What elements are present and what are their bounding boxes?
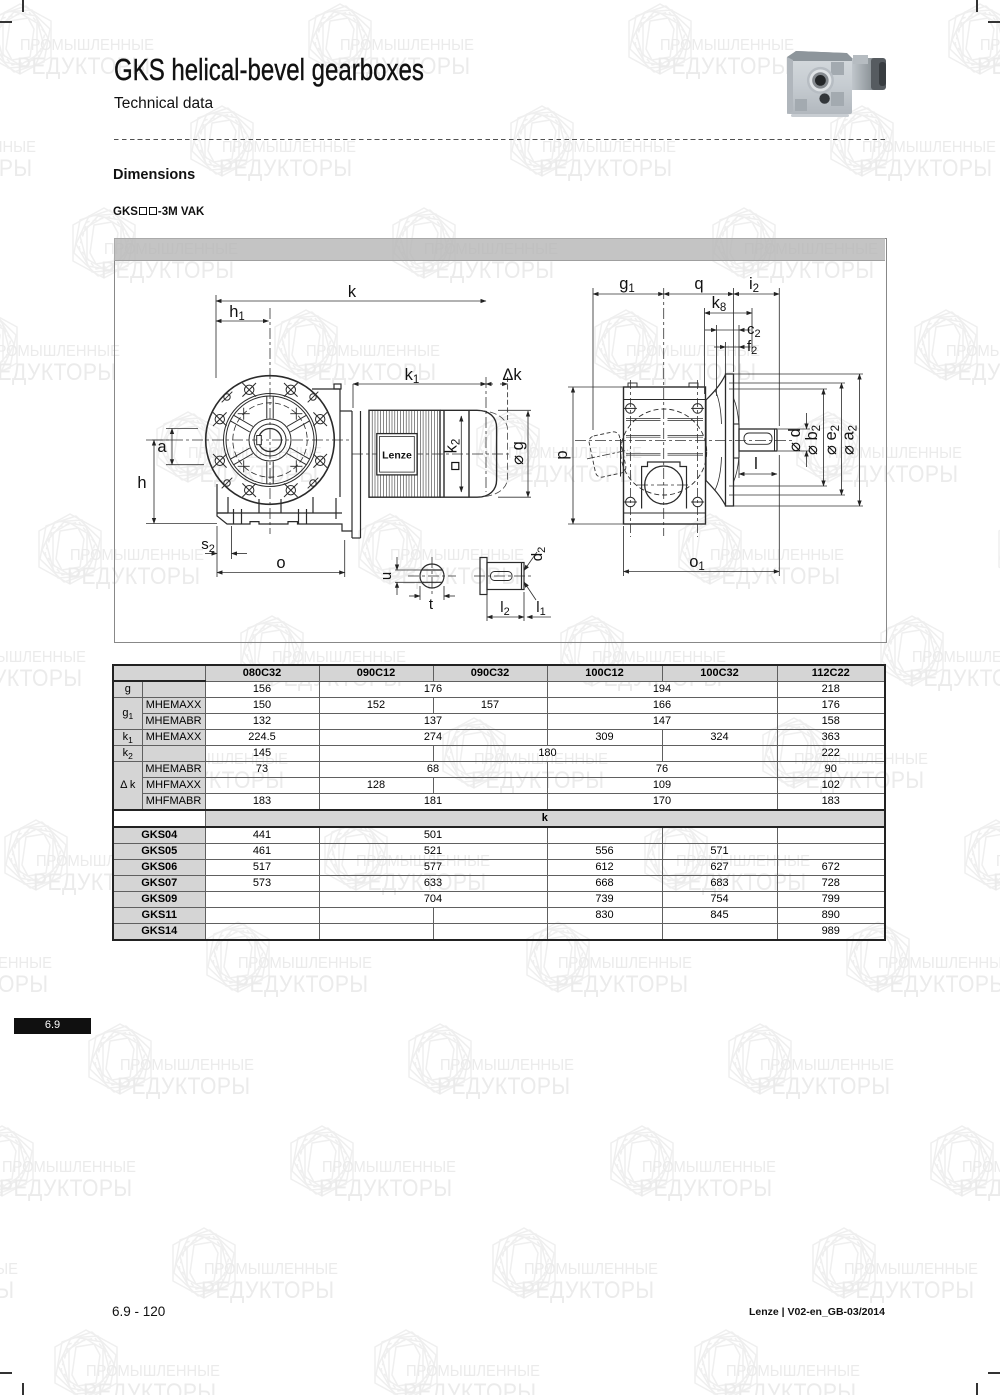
svg-text:⌀ g: ⌀ g [509, 441, 527, 465]
svg-text:o1: o1 [689, 553, 705, 573]
svg-text:t: t [429, 596, 434, 613]
svg-text:⌀ a2: ⌀ a2 [840, 425, 860, 455]
svg-text:a: a [157, 438, 167, 456]
svg-text:q: q [694, 275, 703, 293]
svg-text:s2: s2 [201, 536, 215, 555]
svg-text:l: l [754, 455, 758, 473]
svg-text:Δk: Δk [502, 366, 522, 384]
svg-text:l1: l1 [536, 599, 545, 618]
svg-text:l2: l2 [500, 599, 509, 618]
svg-text:k: k [348, 283, 357, 301]
svg-text:k8: k8 [712, 294, 727, 314]
svg-text:⌀ b2: ⌀ b2 [803, 425, 823, 455]
svg-text:h1: h1 [229, 303, 245, 323]
svg-text:u: u [378, 572, 395, 580]
svg-text:h: h [137, 474, 146, 492]
svg-text:Lenze: Lenze [382, 450, 412, 462]
svg-text:⌀ d: ⌀ d [786, 428, 804, 452]
svg-text:g1: g1 [619, 275, 635, 295]
svg-text:o: o [276, 554, 285, 572]
svg-text:d2: d2 [529, 547, 548, 561]
svg-text:i2: i2 [749, 275, 759, 295]
svg-text:k2: k2 [443, 439, 463, 454]
svg-text:k1: k1 [405, 366, 420, 386]
svg-text:p: p [553, 450, 571, 459]
